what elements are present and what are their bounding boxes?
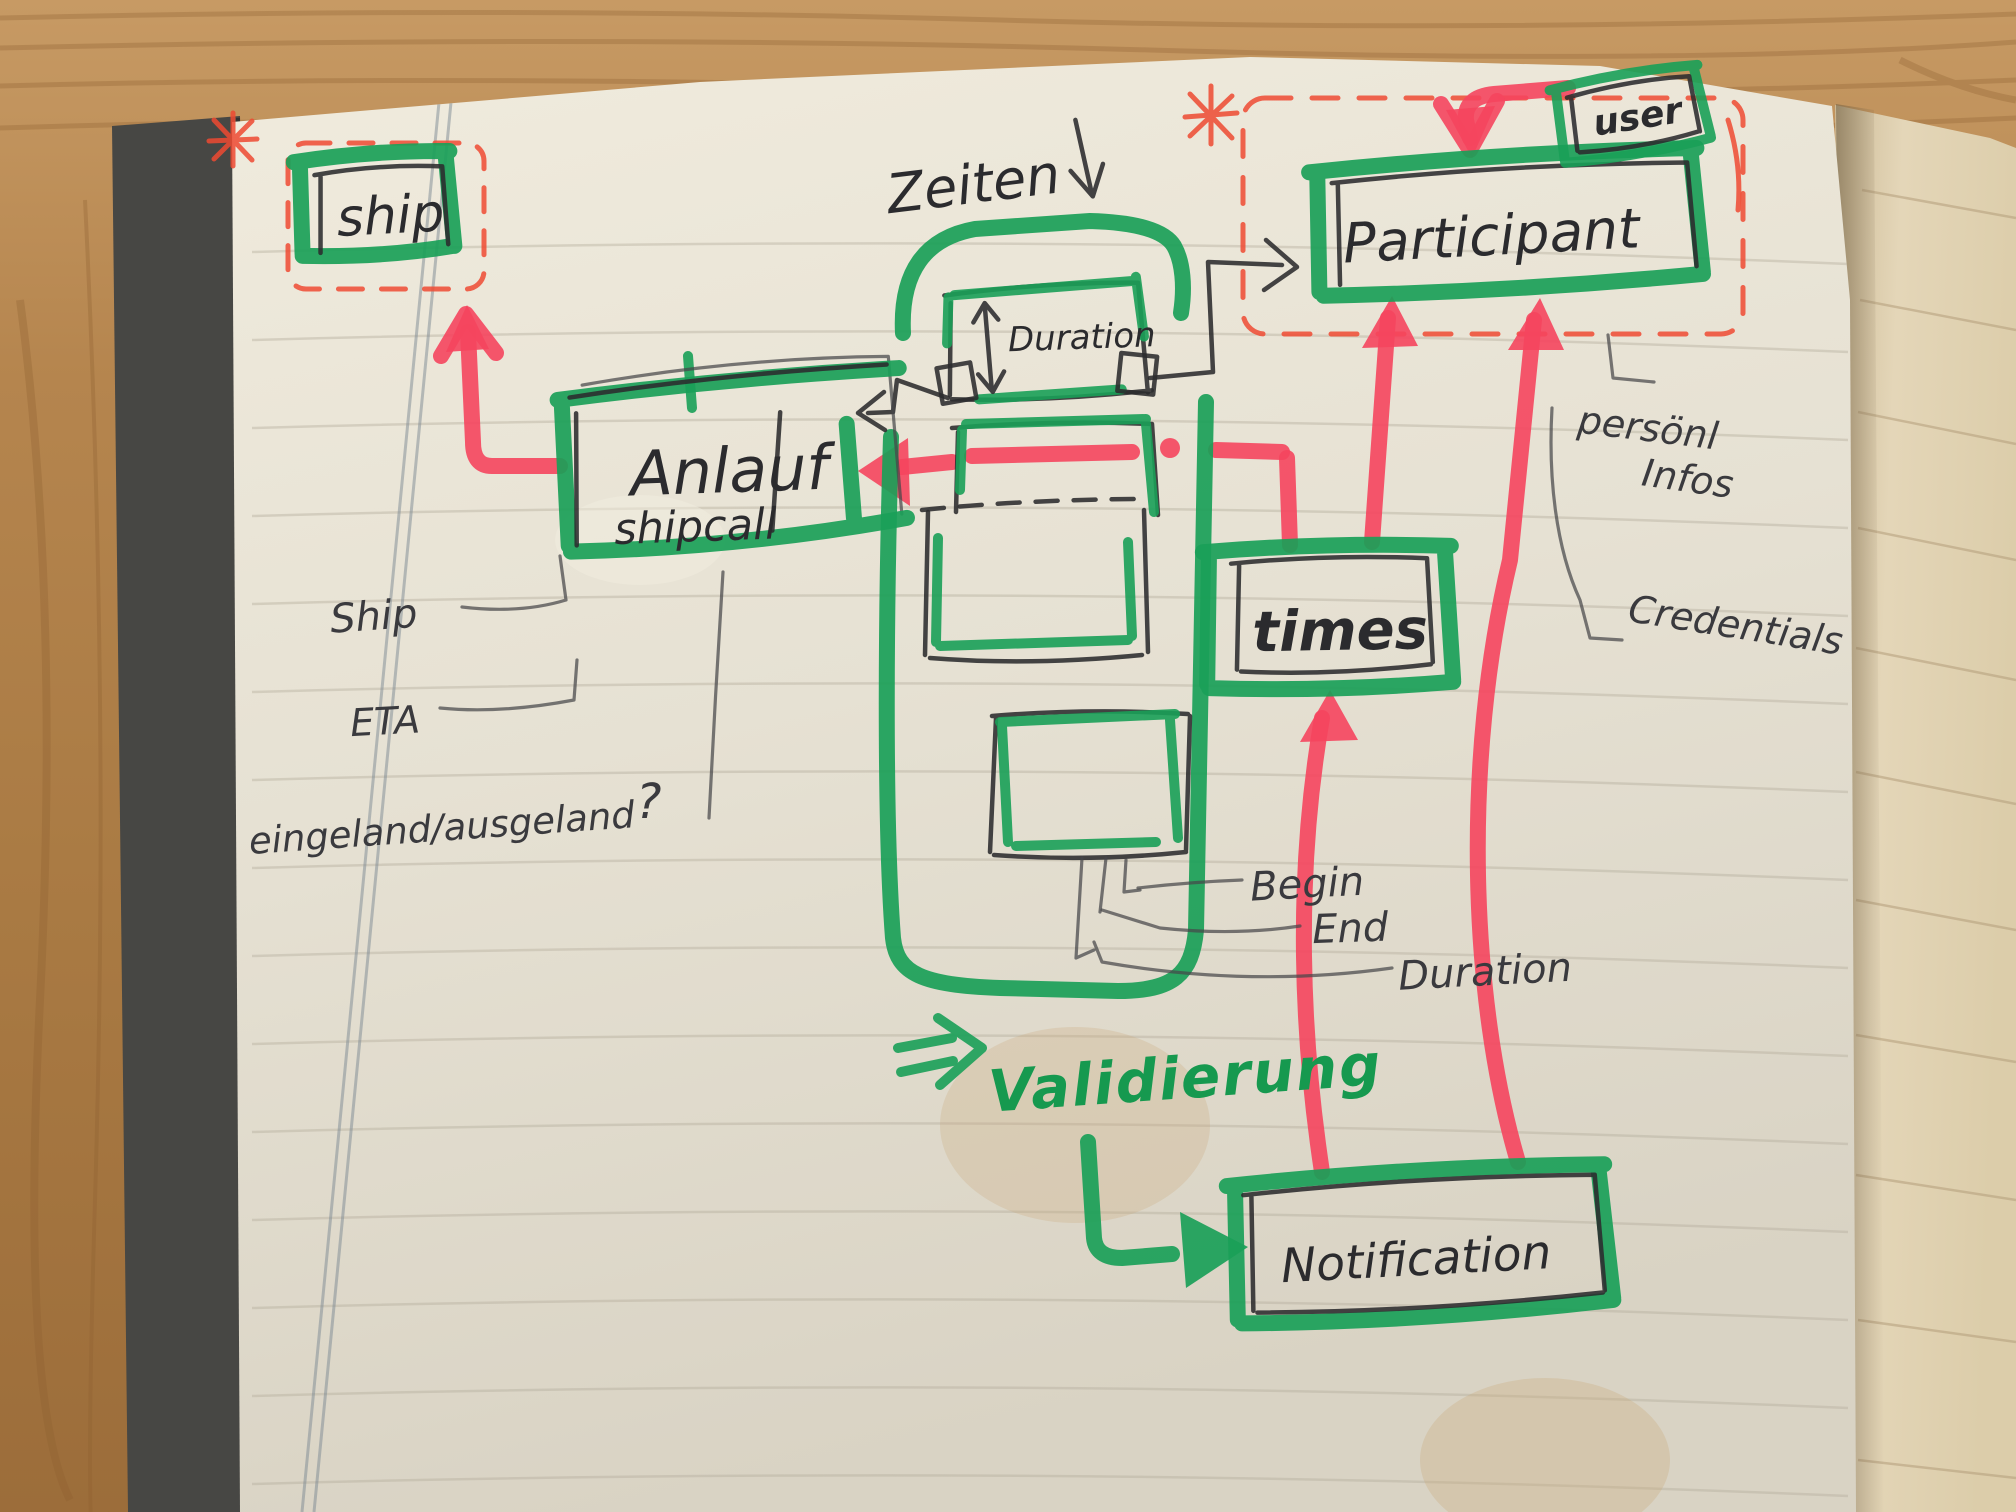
- begin-label: Begin: [1249, 859, 1365, 911]
- anlauf-subtitle: shipcall: [613, 499, 777, 555]
- duration-attr-label: Duration: [1397, 945, 1573, 1000]
- ship-attr-label: Ship: [329, 591, 419, 643]
- eta-label: ETA: [349, 697, 421, 745]
- notebook-photo: Duration Zeiten: [0, 0, 2016, 1512]
- times-label: times: [1252, 597, 1429, 665]
- end-label: End: [1311, 904, 1389, 953]
- anlauf-title: Anlauf: [625, 430, 838, 510]
- inout-question-mark: ?: [636, 774, 661, 830]
- red-asterisk: [209, 113, 257, 166]
- ship-label: ship: [335, 183, 446, 249]
